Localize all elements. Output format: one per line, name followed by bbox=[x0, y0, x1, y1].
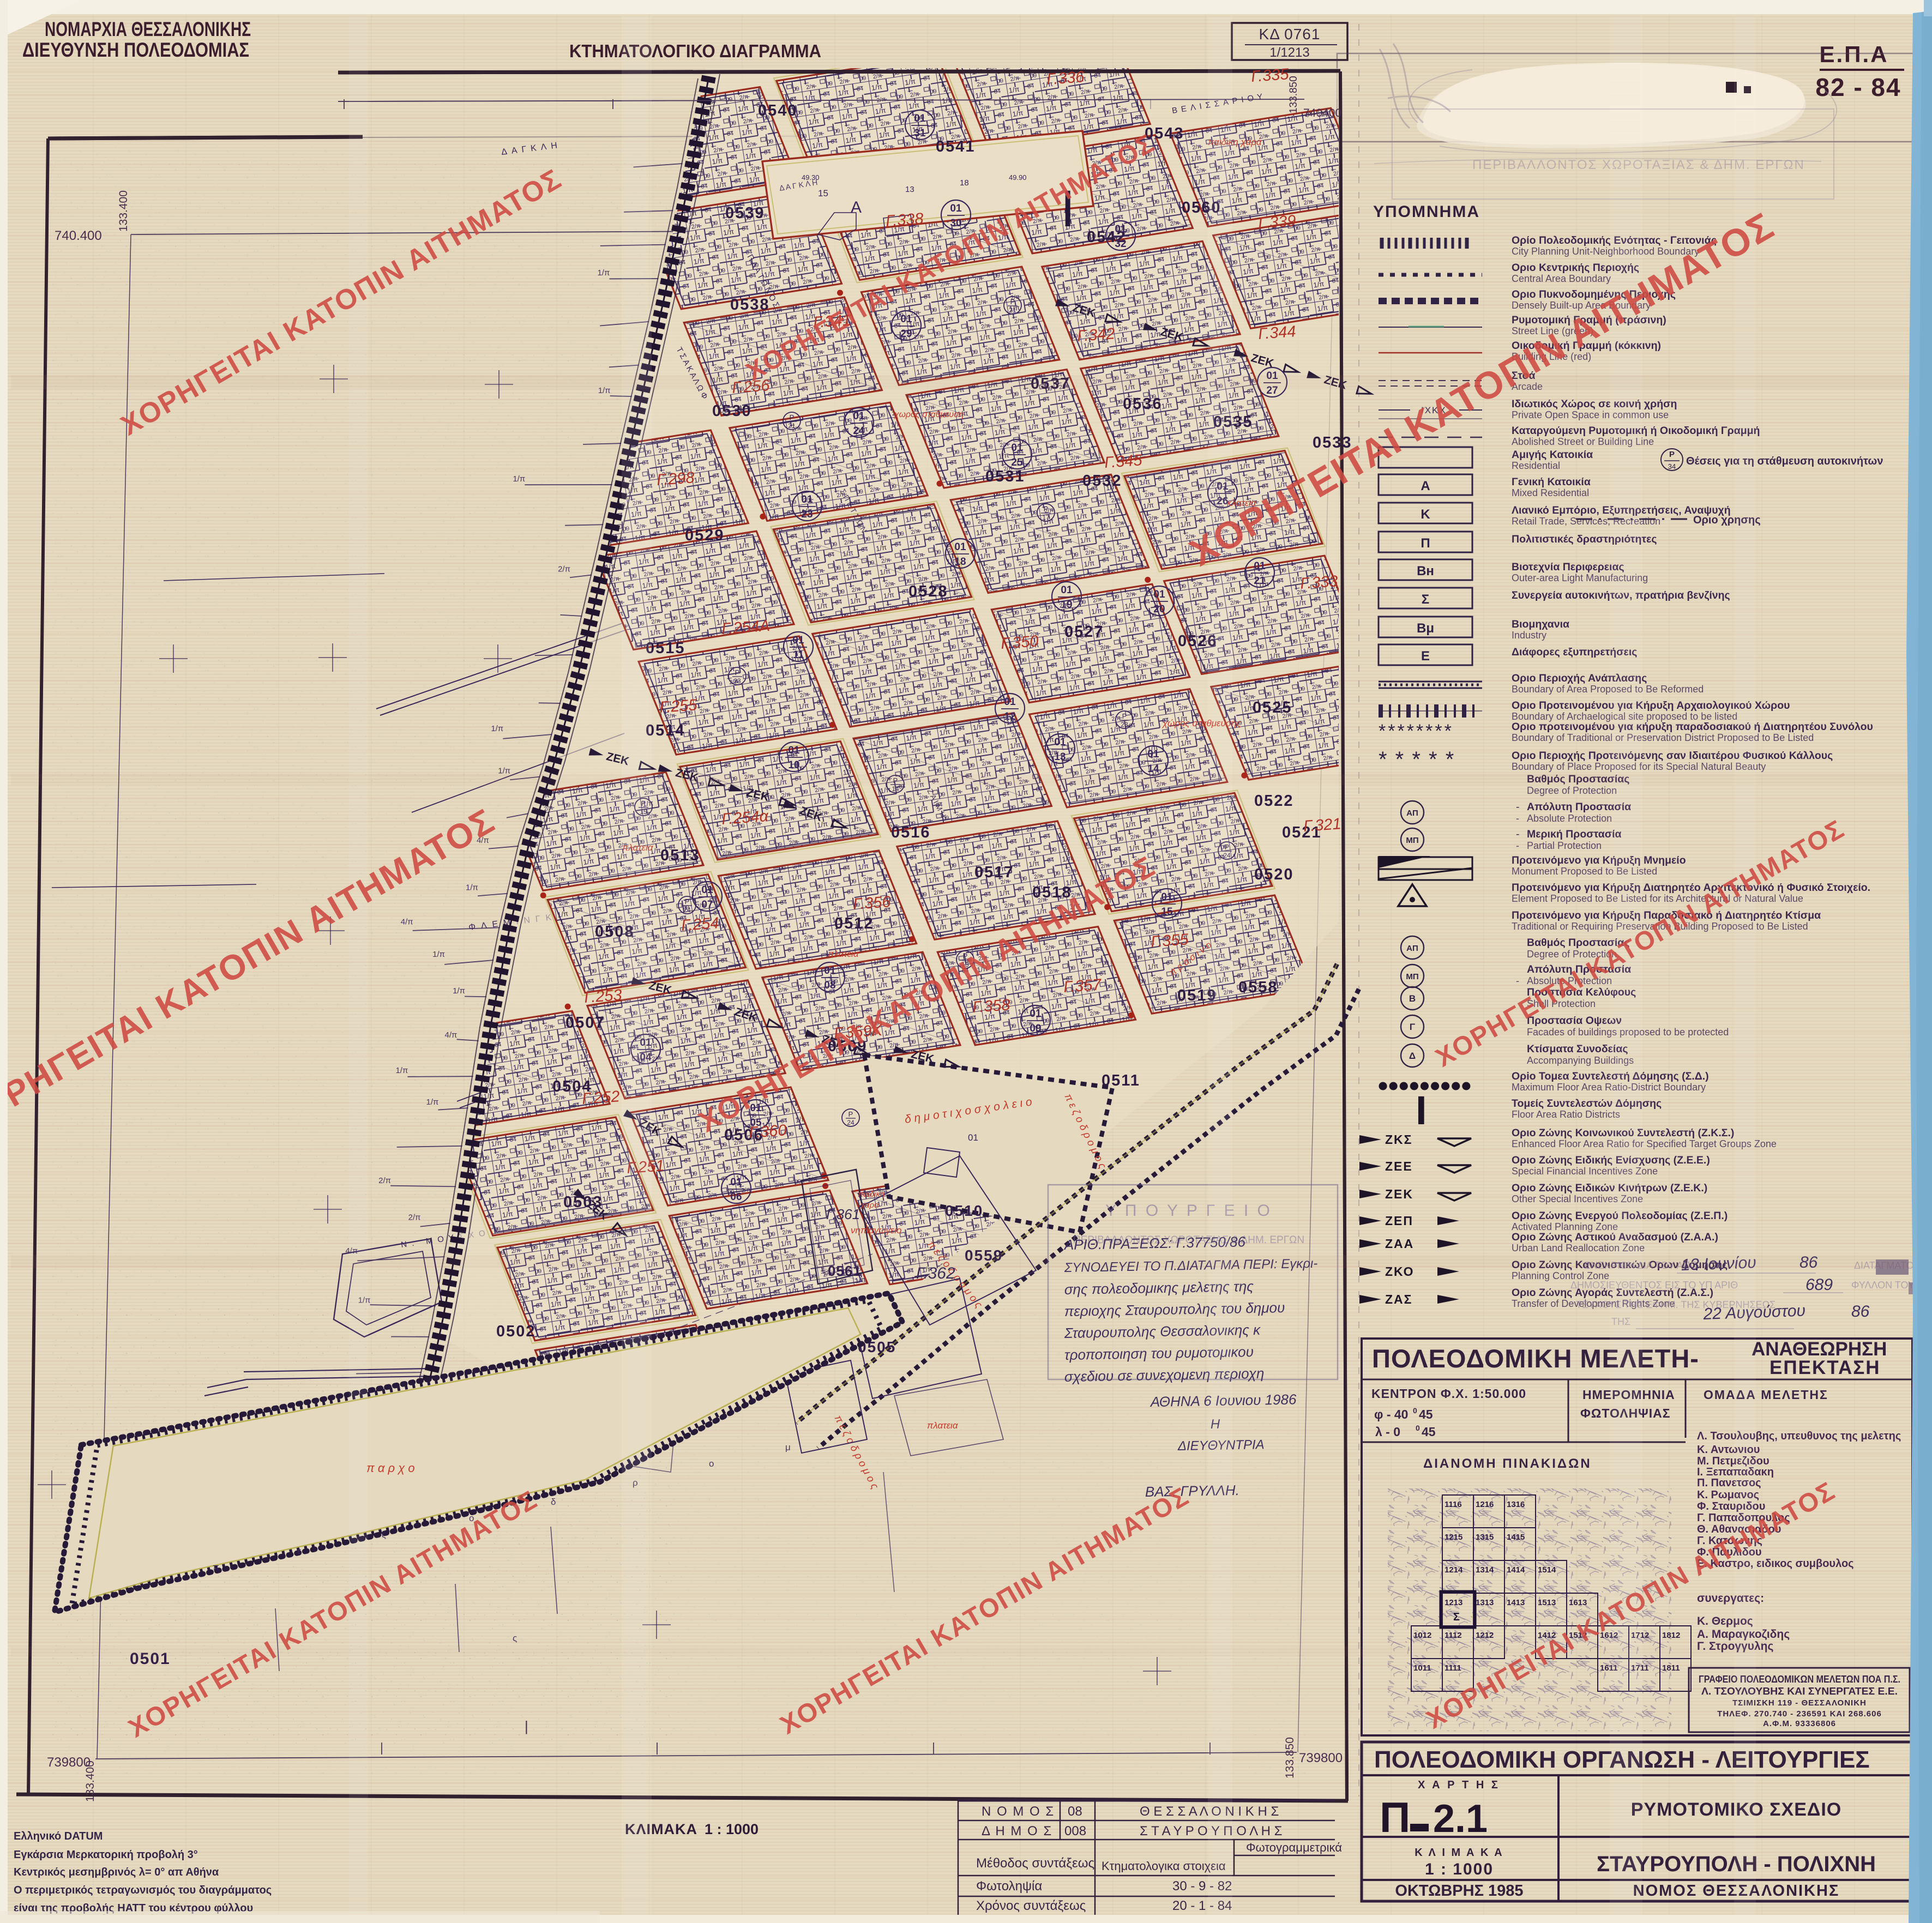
svg-text:Γ.252: Γ.252 bbox=[581, 1088, 620, 1108]
svg-text:01: 01 bbox=[801, 494, 813, 505]
svg-text:1613: 1613 bbox=[1569, 1598, 1587, 1607]
svg-text:Γ.298: Γ.298 bbox=[656, 469, 695, 489]
svg-text:Χ Α Ρ Τ Η Σ: Χ Α Ρ Τ Η Σ bbox=[1418, 1779, 1500, 1791]
svg-text:ΔΙΕΥΘΥΝΣΗ ΠΟΛΕΟΔΟΜΙΑΣ: ΔΙΕΥΘΥΝΣΗ ΠΟΛΕΟΔΟΜΙΑΣ bbox=[22, 39, 249, 61]
svg-text:-: - bbox=[1516, 801, 1520, 813]
svg-text:09: 09 bbox=[1030, 1023, 1041, 1034]
svg-text:Ρ: Ρ bbox=[790, 413, 795, 421]
svg-text:Γ.344: Γ.344 bbox=[1257, 323, 1296, 343]
svg-text:-: - bbox=[1516, 828, 1520, 840]
svg-text:1213: 1213 bbox=[1445, 1598, 1462, 1607]
svg-text:Maximum Floor Area Ratio-Distr: Maximum Floor Area Ratio-District Bounda… bbox=[1512, 1082, 1706, 1093]
svg-text:01: 01 bbox=[853, 411, 865, 422]
svg-text:Ρ: Ρ bbox=[1010, 298, 1015, 306]
svg-text:Βιομηχανια: Βιομηχανια bbox=[1512, 618, 1569, 630]
svg-text:01: 01 bbox=[788, 745, 800, 756]
svg-text:1/π: 1/π bbox=[395, 1066, 408, 1075]
svg-text:ΚΤΗΜΑΤΟΛΟΓΙΚΟ ΔΙΑΓΡΑΜΜΑ: ΚΤΗΜΑΤΟΛΟΓΙΚΟ ΔΙΑΓΡΑΜΜΑ bbox=[569, 41, 821, 61]
svg-text:0531: 0531 bbox=[985, 468, 1025, 485]
svg-text:1/1213: 1/1213 bbox=[1269, 45, 1309, 60]
svg-text:1811: 1811 bbox=[1662, 1663, 1680, 1673]
svg-text:1/π: 1/π bbox=[491, 724, 503, 733]
svg-text:ο: ο bbox=[709, 1458, 714, 1469]
svg-text:ΕΠΕΚΤΑΣΗ: ΕΠΕΚΤΑΣΗ bbox=[1770, 1357, 1881, 1378]
svg-text:Boundary of Area Proposed to B: Boundary of Area Proposed to Be Reformed bbox=[1512, 684, 1704, 695]
svg-text:1316: 1316 bbox=[1507, 1500, 1525, 1509]
svg-text:ΟΚΤΩΒΡΗΣ 1985: ΟΚΤΩΒΡΗΣ 1985 bbox=[1395, 1882, 1523, 1900]
svg-text:14: 14 bbox=[1147, 763, 1159, 775]
svg-text:21: 21 bbox=[1009, 306, 1016, 314]
svg-text:0512: 0512 bbox=[834, 915, 874, 932]
svg-text:Γ.360: Γ.360 bbox=[748, 1122, 787, 1142]
svg-text:0539: 0539 bbox=[725, 204, 765, 222]
svg-text:1111: 1111 bbox=[1445, 1663, 1461, 1673]
svg-text:Δ: Δ bbox=[1409, 1051, 1416, 1061]
svg-text:10: 10 bbox=[788, 759, 799, 771]
svg-text:ΖΑΣ: ΖΑΣ bbox=[1385, 1292, 1412, 1306]
svg-text:01: 01 bbox=[792, 635, 804, 646]
svg-text:45: 45 bbox=[1419, 1407, 1433, 1421]
svg-text:23: 23 bbox=[1121, 721, 1128, 728]
svg-text:01: 01 bbox=[968, 1132, 978, 1143]
svg-text:Β: Β bbox=[1409, 993, 1416, 1004]
svg-text:μ: μ bbox=[785, 1442, 791, 1452]
svg-text:01: 01 bbox=[1004, 696, 1016, 708]
svg-text:01: 01 bbox=[701, 884, 713, 896]
svg-text:Γενική Κατοικία: Γενική Κατοικία bbox=[1512, 476, 1591, 488]
svg-text:4/π: 4/π bbox=[445, 1030, 458, 1040]
svg-text:21: 21 bbox=[788, 422, 796, 430]
svg-text:29: 29 bbox=[900, 328, 912, 340]
svg-text:Π: Π bbox=[1421, 536, 1430, 551]
svg-text:19: 19 bbox=[1061, 599, 1072, 611]
svg-text:2/π: 2/π bbox=[408, 1213, 421, 1222]
svg-text:0528: 0528 bbox=[908, 583, 948, 600]
svg-text:Boundary of Traditional or Pre: Boundary of Traditional or Preservation … bbox=[1512, 732, 1814, 743]
svg-text:δ: δ bbox=[551, 1497, 556, 1507]
svg-text:14: 14 bbox=[892, 785, 899, 793]
svg-text:ΔΙΑΝΟΜΗ ΠΙΝΑΚΙΔΩΝ: ΔΙΑΝΟΜΗ ΠΙΝΑΚΙΔΩΝ bbox=[1423, 1456, 1592, 1471]
svg-text:18: 18 bbox=[960, 178, 969, 188]
svg-text:Μερική Προστασία: Μερική Προστασία bbox=[1527, 828, 1621, 840]
svg-text:Προτεινόμενο για Κήρυξη Διατηρ: Προτεινόμενο για Κήρυξη Διατηρητέο Αρχιτ… bbox=[1512, 882, 1870, 894]
svg-text:01: 01 bbox=[1115, 224, 1127, 235]
svg-text:Ε: Ε bbox=[1421, 649, 1430, 664]
svg-text:Γ.336: Γ.336 bbox=[1046, 68, 1085, 88]
svg-text:01: 01 bbox=[1147, 749, 1159, 760]
svg-text:ΜΠ: ΜΠ bbox=[1406, 836, 1418, 845]
svg-text:ΖΚΣ: ΖΚΣ bbox=[1385, 1132, 1412, 1147]
svg-text:Activated Planning Zone: Activated Planning Zone bbox=[1512, 1221, 1618, 1232]
svg-text:Χρόνος συντάξεως: Χρόνος συντάξεως bbox=[976, 1898, 1086, 1913]
svg-text:1215: 1215 bbox=[1445, 1533, 1462, 1542]
svg-text:01: 01 bbox=[950, 203, 962, 214]
svg-text:Κτηματολογικα στοιχεια: Κτηματολογικα στοιχεια bbox=[1102, 1859, 1226, 1873]
svg-text:0529: 0529 bbox=[685, 527, 725, 544]
svg-text:740400: 740400 bbox=[1303, 107, 1341, 119]
svg-text:ς: ς bbox=[513, 1633, 517, 1643]
svg-text:1812: 1812 bbox=[1662, 1631, 1680, 1640]
svg-text:Floor Area Ratio Districts: Floor Area Ratio Districts bbox=[1512, 1109, 1620, 1120]
svg-text:13: 13 bbox=[1054, 751, 1066, 763]
svg-text:1314: 1314 bbox=[1476, 1565, 1494, 1575]
svg-text:ΑΠ: ΑΠ bbox=[1406, 809, 1418, 818]
svg-text:Ρ: Ρ bbox=[685, 897, 690, 906]
svg-text:Ρ: Ρ bbox=[1122, 712, 1127, 720]
svg-text:0538: 0538 bbox=[730, 296, 770, 314]
svg-text:1/π: 1/π bbox=[466, 883, 478, 893]
svg-text:82 - 84: 82 - 84 bbox=[1815, 73, 1901, 101]
svg-text:2/π: 2/π bbox=[558, 564, 570, 574]
svg-text:25: 25 bbox=[1011, 457, 1023, 468]
svg-text:Γ.345: Γ.345 bbox=[1104, 451, 1143, 472]
svg-text:Γ.333: Γ.333 bbox=[1299, 572, 1338, 593]
svg-text:Φωτοληψία: Φωτοληψία bbox=[976, 1879, 1042, 1894]
svg-text:01: 01 bbox=[900, 314, 912, 325]
svg-text:01: 01 bbox=[1161, 891, 1173, 903]
svg-text:1/π: 1/π bbox=[453, 986, 465, 996]
svg-text:ΚΕΝΤΡΟΝ Φ.Χ. 1:50.000: ΚΕΝΤΡΟΝ Φ.Χ. 1:50.000 bbox=[1371, 1387, 1526, 1401]
svg-text:12: 12 bbox=[1004, 711, 1015, 722]
svg-text:01: 01 bbox=[1153, 589, 1165, 600]
svg-text:24: 24 bbox=[847, 1119, 854, 1126]
svg-text:0522: 0522 bbox=[1254, 792, 1294, 810]
svg-text:1313: 1313 bbox=[1476, 1598, 1494, 1607]
svg-text:0530: 0530 bbox=[712, 402, 752, 420]
svg-text:Σ: Σ bbox=[1453, 1611, 1460, 1623]
svg-text:ΠΟΛΕΟΔΟΜΙΚΗ ΜΕΛΕΤΗ-: ΠΟΛΕΟΔΟΜΙΚΗ ΜΕΛΕΤΗ- bbox=[1372, 1344, 1699, 1373]
svg-text:Οριο Περιοχής Προτεινόμενης σα: Οριο Περιοχής Προτεινόμενης σαν Ιδιαιτέρ… bbox=[1512, 750, 1833, 762]
svg-text:Μέθοδος συντάξεως: Μέθοδος συντάξεως bbox=[976, 1856, 1094, 1871]
svg-text:φ - 40: φ - 40 bbox=[1374, 1407, 1408, 1421]
svg-text:0532: 0532 bbox=[1082, 472, 1122, 490]
svg-text:ΚΔ 0761: ΚΔ 0761 bbox=[1259, 26, 1321, 43]
svg-text:Προτεινόμενο για Κήρυξη Μνημεί: Προτεινόμενο για Κήρυξη Μνημείο bbox=[1512, 854, 1686, 866]
svg-text:08: 08 bbox=[1068, 1804, 1082, 1819]
svg-text:Ν Ο Μ Ο Σ: Ν Ο Μ Ο Σ bbox=[982, 1804, 1055, 1819]
svg-text:Γ.339: Γ.339 bbox=[1257, 212, 1296, 232]
svg-text:Γ: Γ bbox=[1410, 1022, 1415, 1032]
svg-text:0527: 0527 bbox=[1064, 623, 1104, 641]
svg-text:1/π: 1/π bbox=[432, 950, 445, 959]
svg-text:ΖΕΠ: ΖΕΠ bbox=[1385, 1214, 1413, 1228]
svg-text:30: 30 bbox=[950, 218, 961, 229]
svg-text:Αμιγής Κατοικία: Αμιγής Κατοικία bbox=[1512, 449, 1593, 461]
svg-text:1514: 1514 bbox=[1538, 1565, 1556, 1575]
svg-text:Οριο Ζώνης Ειδικών Κινήτρων (Ζ: Οριο Ζώνης Ειδικών Κινήτρων (Ζ.Ε.Κ.) bbox=[1512, 1182, 1707, 1194]
svg-text:Υ Π Ο Υ Ρ Γ Ε Ι Ο: Υ Π Ο Υ Ρ Γ Ε Ι Ο bbox=[1105, 1202, 1272, 1220]
svg-text:13: 13 bbox=[905, 185, 914, 194]
svg-text:15: 15 bbox=[818, 188, 828, 198]
svg-text:01: 01 bbox=[914, 113, 926, 124]
svg-text:Partial Protection: Partial Protection bbox=[1527, 840, 1602, 851]
svg-text:πλατεια: πλατεια bbox=[828, 949, 859, 959]
svg-text:Ιδιωτικός Χώρος σε κοινή χ: Ιδιωτικός Χώρος σε κοινή χρήση bbox=[1512, 398, 1677, 410]
svg-text:Element Proposed to Be Listed: Element Proposed to Be Listed for its Ar… bbox=[1512, 893, 1803, 904]
svg-text:0510: 0510 bbox=[945, 1202, 983, 1219]
svg-text:Δ Η Μ Ο Σ: Δ Η Μ Ο Σ bbox=[982, 1824, 1052, 1838]
svg-text:1 : 1000: 1 : 1000 bbox=[705, 1821, 759, 1837]
svg-text:008: 008 bbox=[1064, 1824, 1086, 1838]
svg-text:01: 01 bbox=[954, 541, 966, 553]
svg-text:Γ.350: Γ.350 bbox=[1000, 632, 1039, 653]
svg-text:Κεντρικός μεσημβρινός λ= 0°: Κεντρικός μεσημβρινός λ= 0° απ Αθήνα bbox=[14, 1866, 219, 1878]
svg-text:Κ: Κ bbox=[1421, 507, 1430, 522]
svg-text:1414: 1414 bbox=[1507, 1565, 1525, 1575]
svg-text:Ρ: Ρ bbox=[848, 1110, 853, 1118]
svg-text:ΖΑΑ: ΖΑΑ bbox=[1385, 1237, 1414, 1251]
svg-text:********: ******** bbox=[1379, 721, 1454, 742]
svg-text:Βн: Βн bbox=[1417, 564, 1434, 578]
svg-text:01: 01 bbox=[824, 965, 836, 976]
svg-text:Γ.342: Γ.342 bbox=[1076, 325, 1115, 345]
svg-text:0: 0 bbox=[1413, 1406, 1417, 1415]
svg-text:0558: 0558 bbox=[1238, 979, 1278, 996]
svg-text:Π: Π bbox=[1380, 1793, 1410, 1841]
svg-text:ζ: ζ bbox=[382, 1529, 386, 1540]
svg-text:1/π: 1/π bbox=[426, 1098, 438, 1107]
svg-text:4/π: 4/π bbox=[401, 917, 413, 926]
svg-text:Γ.335: Γ.335 bbox=[1250, 65, 1290, 86]
svg-text:01: 01 bbox=[730, 1177, 742, 1188]
svg-text:20: 20 bbox=[1153, 604, 1165, 615]
svg-text:1012: 1012 bbox=[1413, 1631, 1431, 1640]
svg-text:Α: Α bbox=[1421, 479, 1430, 493]
svg-text:Γ.338: Γ.338 bbox=[885, 210, 924, 230]
svg-text:Α.Φ.Μ. 93336806: Α.Φ.Μ. 93336806 bbox=[1763, 1719, 1836, 1728]
svg-text:01: 01 bbox=[1061, 584, 1073, 596]
svg-text:-: - bbox=[1516, 813, 1519, 824]
svg-text:Ρ: Ρ bbox=[1044, 505, 1049, 513]
svg-text:45: 45 bbox=[1422, 1425, 1436, 1439]
svg-text:0: 0 bbox=[1416, 1424, 1420, 1432]
svg-text:1/π: 1/π bbox=[597, 268, 610, 278]
svg-text:νηπιαγωγειο: νηπιαγωγειο bbox=[851, 1225, 901, 1235]
svg-text:01: 01 bbox=[1011, 442, 1023, 454]
svg-text:17: 17 bbox=[1042, 514, 1050, 521]
svg-text:Γ.254Α: Γ.254Α bbox=[721, 617, 771, 638]
svg-text:2/π: 2/π bbox=[378, 1176, 391, 1185]
svg-text:χωρος σταθμευση: χωρος σταθμευση bbox=[893, 410, 964, 419]
svg-text:1214: 1214 bbox=[1445, 1565, 1463, 1575]
svg-text:24: 24 bbox=[853, 425, 865, 437]
svg-text:1216: 1216 bbox=[1476, 1500, 1494, 1509]
svg-text:Central Area Boundary: Central Area Boundary bbox=[1512, 273, 1611, 284]
svg-text:1513: 1513 bbox=[1538, 1598, 1556, 1607]
svg-text:0502: 0502 bbox=[496, 1323, 536, 1340]
svg-text:11: 11 bbox=[793, 649, 804, 661]
svg-text:Μ. Πετμεζιδου: Μ. Πετμεζιδου bbox=[1697, 1455, 1770, 1467]
svg-text:01: 01 bbox=[1054, 737, 1066, 748]
svg-text:0503: 0503 bbox=[563, 1193, 603, 1211]
svg-text:ΟΜΑΔΑ ΜΕΛΕΤΗΣ: ΟΜΑΔΑ ΜΕΛΕΤΗΣ bbox=[1704, 1388, 1828, 1402]
svg-text:06: 06 bbox=[730, 1191, 742, 1203]
svg-text:-: - bbox=[1516, 975, 1519, 986]
svg-text:Private Open Space in common: Private Open Space in common use bbox=[1512, 409, 1669, 420]
svg-text:2.1: 2.1 bbox=[1433, 1797, 1488, 1841]
svg-text:I: I bbox=[1416, 1088, 1427, 1133]
svg-text:Βιοτεχνία Περιφερειας: Βιοτεχνία Περιφερειας bbox=[1512, 561, 1624, 573]
svg-text:πλατεια: πλατεια bbox=[927, 1420, 959, 1431]
svg-text:χαρα: χαρα bbox=[859, 1201, 879, 1210]
svg-text:Ο περιμετρικός τετραγωνισμός: Ο περιμετρικός τετραγωνισμός του διαγράμ… bbox=[14, 1884, 272, 1896]
svg-text:Absolute Protection: Absolute Protection bbox=[1527, 813, 1612, 824]
svg-text:1011: 1011 bbox=[1413, 1663, 1431, 1673]
svg-text:ε: ε bbox=[297, 1546, 302, 1556]
svg-text:0507: 0507 bbox=[565, 1014, 605, 1032]
svg-text:Βμ: Βμ bbox=[1417, 621, 1434, 636]
svg-text:* * * * *: * * * * * bbox=[1379, 748, 1455, 771]
svg-text:Γ.254: Γ.254 bbox=[681, 914, 719, 935]
svg-text:Γ.255: Γ.255 bbox=[659, 696, 698, 716]
svg-text:ΓΡΑΦΕΙΟ ΠΟΛΕΟΔΟΜΙΚΩΝ ΜΕΛΕΤΩΝ Π: ΓΡΑΦΕΙΟ ΠΟΛΕΟΔΟΜΙΚΩΝ ΜΕΛΕΤΩΝ ΠΟΑ Π.Σ. bbox=[1699, 1674, 1900, 1685]
svg-text:Γ.358: Γ.358 bbox=[972, 996, 1010, 1016]
svg-text:Γ.361: Γ.361 bbox=[826, 1206, 860, 1222]
svg-text:0541: 0541 bbox=[936, 138, 976, 155]
svg-text:133.850: 133.850 bbox=[1288, 76, 1299, 113]
svg-text:0516: 0516 bbox=[891, 824, 931, 841]
svg-text:σχεδιου σε συνεχομενη περιοχη: σχεδιου σε συνεχομενη περιοχη bbox=[1064, 1365, 1265, 1385]
svg-text:ΜΠ: ΜΠ bbox=[1406, 972, 1418, 981]
svg-text:Θέσεις για τη στάθμευση αυτοκ: Θέσεις για τη στάθμευση αυτοκινήτων bbox=[1686, 455, 1883, 467]
svg-text:1/π: 1/π bbox=[513, 474, 525, 484]
svg-text:Ε.Π.Α: Ε.Π.Α bbox=[1819, 41, 1888, 67]
svg-text:18: 18 bbox=[954, 556, 966, 568]
svg-text:ΝΟΜΑΡΧΙΑ ΘΕΣΣΑΛΟΝΙΚΗΣ: ΝΟΜΑΡΧΙΑ ΘΕΣΣΑΛΟΝΙΚΗΣ bbox=[45, 18, 251, 40]
svg-text:86: 86 bbox=[1851, 1303, 1870, 1321]
svg-text:34: 34 bbox=[1668, 462, 1676, 471]
svg-text:Degree of Protection: Degree of Protection bbox=[1527, 785, 1617, 796]
svg-text:Γ.357: Γ.357 bbox=[1063, 976, 1103, 996]
svg-text:π: π bbox=[213, 1562, 219, 1572]
svg-text:21: 21 bbox=[1254, 575, 1266, 587]
svg-text:689: 689 bbox=[1805, 1276, 1833, 1294]
svg-text:P: P bbox=[1669, 450, 1675, 459]
svg-text:ΦΥΛΛΟΝ ΤΟΥ: ΦΥΛΛΟΝ ΤΟΥ bbox=[1851, 1280, 1915, 1291]
svg-text:0540: 0540 bbox=[758, 102, 798, 119]
svg-text:Λ. ΤΣΟΥΛΟΥΒΗΣ ΚΑΙ ΣΥΝΕΡΓΑΤΕ: Λ. ΤΣΟΥΛΟΥΒΗΣ ΚΑΙ ΣΥΝΕΡΓΑΤΕΣ Ε.Ε. bbox=[1701, 1686, 1898, 1697]
svg-text:0520: 0520 bbox=[1254, 866, 1294, 883]
svg-text:Σ: Σ bbox=[1422, 592, 1429, 607]
svg-text:0525: 0525 bbox=[1253, 699, 1292, 716]
svg-text:Γ.355: Γ.355 bbox=[1150, 931, 1189, 951]
svg-text:32: 32 bbox=[1115, 238, 1126, 250]
svg-text:1415: 1415 bbox=[1507, 1533, 1525, 1542]
svg-text:07: 07 bbox=[701, 899, 713, 911]
svg-text:0517: 0517 bbox=[974, 864, 1014, 881]
svg-text:15: 15 bbox=[1161, 906, 1173, 918]
svg-text:ΥΠΟΜΝΗΜΑ: ΥΠΟΜΝΗΜΑ bbox=[1373, 203, 1480, 221]
svg-text:-: - bbox=[1516, 840, 1519, 851]
svg-text:π α ρ χ ο: π α ρ χ ο bbox=[366, 1461, 415, 1475]
svg-text:0513: 0513 bbox=[660, 847, 700, 864]
svg-text:1315: 1315 bbox=[1476, 1533, 1494, 1542]
svg-text:1413: 1413 bbox=[1507, 1598, 1525, 1607]
svg-text:Γ.254α: Γ.254α bbox=[721, 807, 769, 828]
svg-text:ΑΠ: ΑΠ bbox=[1406, 944, 1418, 953]
svg-text:1116: 1116 bbox=[1445, 1500, 1462, 1509]
svg-text:1 : 1000: 1 : 1000 bbox=[1425, 1860, 1494, 1878]
svg-text:01: 01 bbox=[1254, 560, 1266, 572]
svg-text:παιδικη: παιδικη bbox=[858, 1190, 884, 1199]
svg-text:Ρ: Ρ bbox=[735, 668, 740, 677]
svg-text:ΖΕΚ: ΖΕΚ bbox=[1385, 1187, 1413, 1201]
svg-text:Γ.253: Γ.253 bbox=[583, 986, 622, 1006]
svg-text:Γ.321: Γ.321 bbox=[1303, 815, 1341, 835]
svg-text:08: 08 bbox=[824, 980, 835, 991]
svg-text:ΖΕΕ: ΖΕΕ bbox=[1385, 1159, 1413, 1173]
svg-text:Γ.356: Γ.356 bbox=[852, 893, 892, 913]
svg-text:Οριο προτεινομένου για κήρυξη: Οριο προτεινομένου για κήρυξη παραδοσιακ… bbox=[1512, 721, 1873, 733]
svg-text:49.90: 49.90 bbox=[1009, 173, 1027, 182]
svg-text:Φωτογραμμετρικά: Φωτογραμμετρικά bbox=[1246, 1841, 1342, 1854]
svg-text:Εγκάρσια Μερκατορική προβολή: Εγκάρσια Μερκατορική προβολή 3° bbox=[14, 1849, 198, 1861]
svg-text:24: 24 bbox=[683, 906, 691, 914]
svg-text:23: 23 bbox=[801, 509, 812, 520]
svg-text:ΔΗΜΟΣΙΕΥΘΕΝΤΟΣ ΕΙΣ ΤΟ ΥΠ Α: ΔΗΜΟΣΙΕΥΘΕΝΤΟΣ ΕΙΣ ΤΟ ΥΠ ΑΡΙΘ bbox=[1570, 1280, 1738, 1291]
svg-text:0511: 0511 bbox=[1102, 1072, 1140, 1089]
svg-text:Λ. Τσουλουβης, υπευθυνος της μ: Λ. Τσουλουβης, υπευθυνος της μελετης bbox=[1697, 1430, 1901, 1442]
svg-text:Ελληνικό DATUM: Ελληνικό DATUM bbox=[14, 1830, 103, 1842]
svg-text:λ - 0: λ - 0 bbox=[1375, 1425, 1400, 1439]
svg-text:1112: 1112 bbox=[1445, 1631, 1462, 1640]
svg-text:1212: 1212 bbox=[1476, 1631, 1494, 1640]
svg-text:Industry: Industry bbox=[1512, 630, 1546, 641]
svg-text:31: 31 bbox=[914, 128, 926, 139]
svg-text:23: 23 bbox=[733, 677, 741, 685]
svg-text:0536: 0536 bbox=[1123, 395, 1163, 413]
svg-text:Residential: Residential bbox=[1512, 460, 1560, 471]
svg-text:Κ Λ Ι Μ Α Κ Α: Κ Λ Ι Μ Α Κ Α bbox=[1415, 1847, 1503, 1859]
svg-text:Mixed Residential: Mixed Residential bbox=[1512, 487, 1589, 498]
svg-text:01: 01 bbox=[1030, 1008, 1042, 1020]
